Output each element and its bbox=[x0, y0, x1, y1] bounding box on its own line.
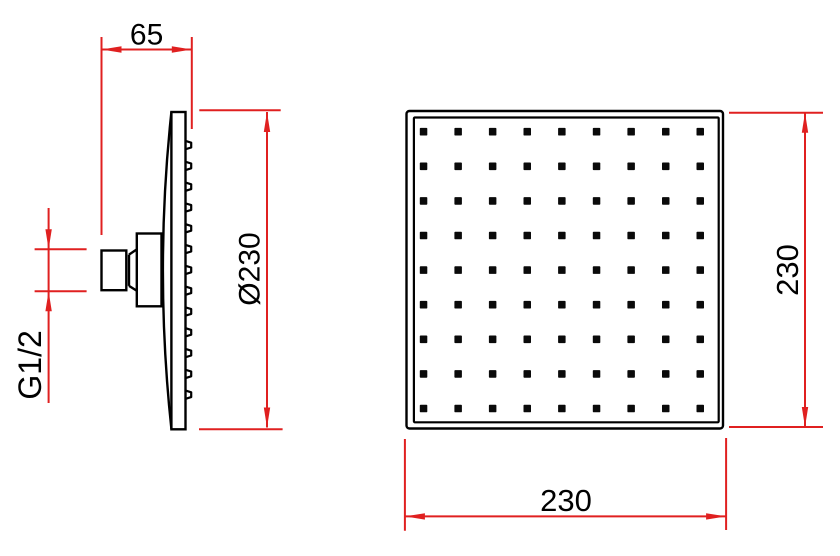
svg-text:65: 65 bbox=[130, 18, 163, 51]
svg-text:Ø230: Ø230 bbox=[234, 232, 267, 305]
svg-text:G1/2: G1/2 bbox=[12, 330, 48, 399]
svg-text:230: 230 bbox=[540, 483, 592, 518]
svg-text:230: 230 bbox=[770, 244, 805, 296]
